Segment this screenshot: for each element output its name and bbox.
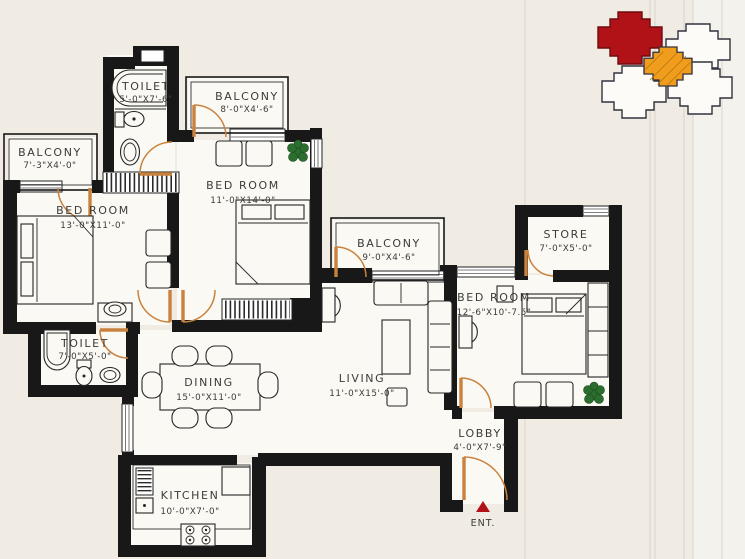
room-dims-bedroom-left: 13'-0"X11'-0": [60, 221, 125, 231]
bed-icon: [522, 294, 586, 374]
room-dims-dining: 15'-0"X11'-0": [176, 393, 241, 403]
room-dims-bedroom-mid: 11'-0"X14'-0": [210, 196, 275, 206]
room-dims-balcony-left: 7'-3"X4'-0": [23, 161, 76, 171]
wc-icon: [76, 360, 92, 386]
wardrobe-icon: [588, 283, 608, 377]
chair-icon: [258, 372, 278, 398]
room-label-toilet-left: TOILET: [60, 337, 109, 350]
washbasin-icon: [121, 139, 140, 165]
bathtub-icon: [44, 330, 70, 370]
bed-icon: [236, 200, 310, 284]
chair-icon: [172, 408, 198, 428]
sofa-long-icon: [428, 301, 452, 393]
room-label-balcony-left: BALCONY: [18, 146, 82, 159]
room-dims-store: 7'-0"X5'-0": [539, 244, 592, 254]
floor-plan-svg: TOILET 5'-0"X7'-6" BALCONY 8'-0"X4'-6" B…: [0, 0, 745, 559]
chair-icon: [514, 382, 541, 407]
coffee-table-icon: [382, 320, 410, 374]
room-label-dining: DINING: [184, 376, 234, 389]
room-dims-balcony-mid: 9'-0"X4'-6": [362, 253, 415, 263]
chair-icon: [146, 230, 171, 256]
room-label-living: LIVING: [339, 372, 386, 385]
room-label-kitchen: KITCHEN: [161, 489, 220, 502]
room-label-lobby: LOBBY: [458, 427, 502, 440]
stove-icon: [181, 524, 215, 546]
wc-icon: [115, 112, 144, 128]
chair-icon: [206, 408, 232, 428]
room-dims-toilet-top: 5'-0"X7'-6": [119, 95, 172, 105]
room-label-store: STORE: [544, 228, 589, 241]
floor-plan-page: TOILET 5'-0"X7'-6" BALCONY 8'-0"X4'-6" B…: [0, 0, 745, 559]
room-dims-living: 11'-0"X15'-0": [329, 389, 394, 399]
chair-icon: [172, 346, 198, 366]
room-label-bedroom-mid: BED ROOM: [206, 179, 280, 192]
room-label-balcony-mid: BALCONY: [357, 237, 421, 250]
room-label-bedroom-left: BED ROOM: [56, 204, 130, 217]
dresser-icon: [98, 302, 132, 322]
room-label-bedroom-right: BED ROOM: [457, 291, 531, 304]
room-label-toilet-top: TOILET: [121, 80, 170, 93]
chair-icon: [546, 382, 573, 407]
room-dims-lobby: 4'-0"X7'-9": [453, 443, 506, 453]
chair-icon: [216, 141, 242, 166]
sofa-icon: [374, 281, 428, 305]
chair-icon: [206, 346, 232, 366]
sink-icon: [136, 468, 153, 513]
room-dims-kitchen: 10'-0"X7'-0": [160, 507, 219, 517]
room-dims-toilet-left: 7'-0"X5'-0": [58, 352, 111, 362]
chair-icon: [142, 372, 162, 398]
entrance-label: ENT.: [471, 518, 496, 529]
room-dims-bedroom-right: 12'-6"X10'-7.5": [457, 308, 532, 318]
washbasin-icon: [100, 368, 120, 383]
room-label-balcony-top: BALCONY: [215, 90, 279, 103]
chair-icon: [246, 141, 272, 166]
chair-icon: [146, 262, 171, 288]
room-dims-balcony-top: 8'-0"X4'-6": [220, 105, 273, 115]
kitchen-platform-icon: [222, 467, 250, 495]
